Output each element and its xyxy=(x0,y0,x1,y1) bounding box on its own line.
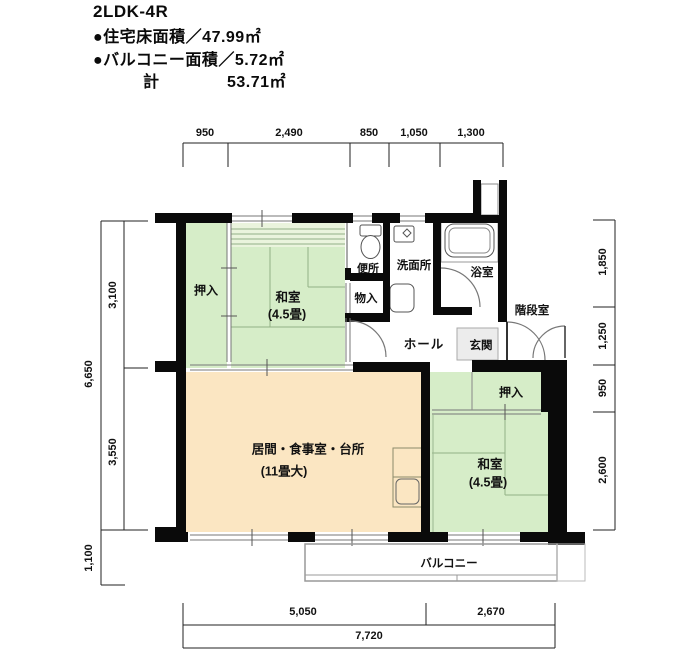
dim-right-950: 950 xyxy=(597,379,609,397)
label-entrance: 玄関 xyxy=(470,337,493,353)
neighbor-door-arc xyxy=(533,326,565,358)
dim-bottom-7720: 7,720 xyxy=(355,630,383,642)
window-ldk-1 xyxy=(190,535,288,540)
washitsu-bottom-floor xyxy=(430,372,548,532)
outer-wall-right-upper xyxy=(498,218,507,322)
label-balcony: バルコニー xyxy=(420,555,477,571)
label-washitsu-bottom: 和室 xyxy=(477,454,502,473)
outer-wall-right-lower xyxy=(548,372,567,545)
label-hall: ホール xyxy=(404,334,445,353)
label-washroom: 洗面所 xyxy=(397,257,432,273)
label-oshiire-top: 押入 xyxy=(194,282,218,299)
label-toilet: 便所 xyxy=(357,260,379,276)
dim-right-1250: 1,250 xyxy=(597,322,609,350)
dim-top-2: 2,490 xyxy=(275,127,303,139)
kitchen-sink-icon xyxy=(396,479,419,504)
dim-right-1850: 1,850 xyxy=(597,248,609,276)
door-storage xyxy=(346,283,350,313)
floorplan-canvas xyxy=(0,0,700,650)
label-oshiire-bottom: 押入 xyxy=(499,384,523,401)
washing-machine-icon xyxy=(390,284,414,312)
window-toilet xyxy=(353,216,372,221)
window-washroom xyxy=(400,216,425,221)
label-ldk: 居間・食事室・台所 xyxy=(252,439,365,458)
dim-top-5: 1,300 xyxy=(457,127,485,139)
entrance-door-arc xyxy=(507,322,545,360)
outer-wall-left xyxy=(176,213,186,538)
label-ldk-size: (11畳大) xyxy=(261,461,308,480)
label-bathroom: 浴室 xyxy=(471,264,494,280)
label-storage: 物入 xyxy=(355,290,378,306)
floorplan-page: 2LDK-4R ●住宅床面積／47.99㎡ ●バルコニー面積／5.72㎡ 計 5… xyxy=(0,0,700,650)
dim-bottom-5050: 5,050 xyxy=(289,606,317,618)
toilet-bowl-icon xyxy=(361,236,380,259)
pipe-space-box xyxy=(481,184,498,215)
dim-left-1100: 1,100 xyxy=(83,544,95,572)
dim-top-1: 950 xyxy=(196,127,214,139)
fusuma-oshiire-top xyxy=(227,223,231,362)
dim-left-3100: 3,100 xyxy=(107,281,119,309)
dim-right-2600: 2,600 xyxy=(597,456,609,484)
window-washitsu-bottom xyxy=(448,535,520,540)
dim-top-4: 1,050 xyxy=(400,127,428,139)
dim-left-6650: 6,650 xyxy=(83,360,95,388)
sliding-door-washitsu-hall xyxy=(346,318,350,362)
dim-top-3: 850 xyxy=(360,127,378,139)
toilet-tank-icon xyxy=(360,225,381,236)
dim-bottom-2670: 2,670 xyxy=(477,606,505,618)
label-stairwell: 階段室 xyxy=(515,302,550,318)
dim-left-3550: 3,550 xyxy=(107,438,119,466)
washroom-door-arc xyxy=(350,321,386,357)
washitsu-top-band xyxy=(231,223,345,247)
label-washitsu-top-size: (4.5畳) xyxy=(268,304,306,323)
label-washitsu-bottom-size: (4.5畳) xyxy=(469,472,507,491)
